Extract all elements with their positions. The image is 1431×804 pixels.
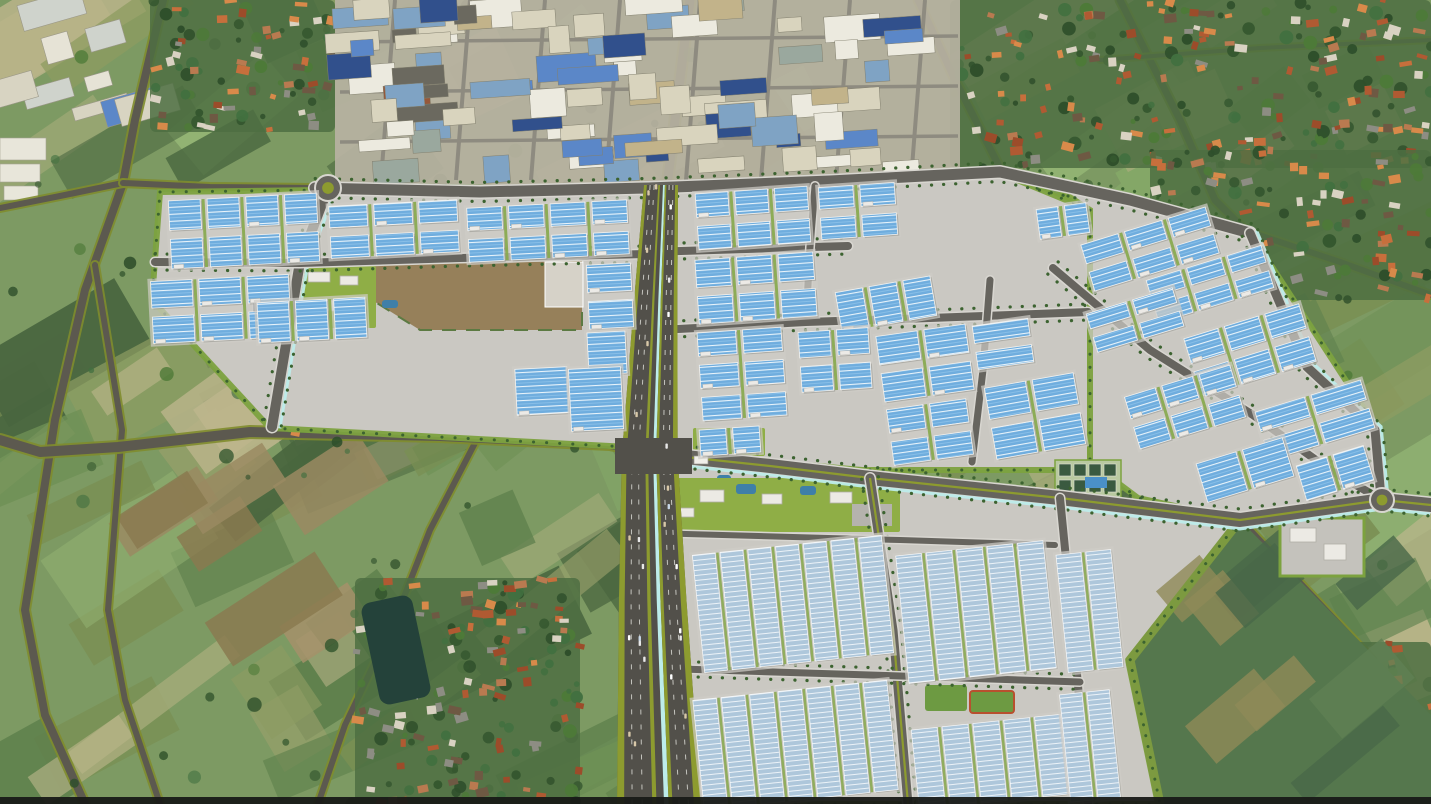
masterplan-render-canvas: [0, 0, 1431, 804]
overlay-layer: [0, 797, 1431, 804]
existing-industrial-layer: [325, 0, 960, 188]
aerial-masterplan-view: Aerial 3D rendering of an industrial par…: [0, 0, 1431, 804]
